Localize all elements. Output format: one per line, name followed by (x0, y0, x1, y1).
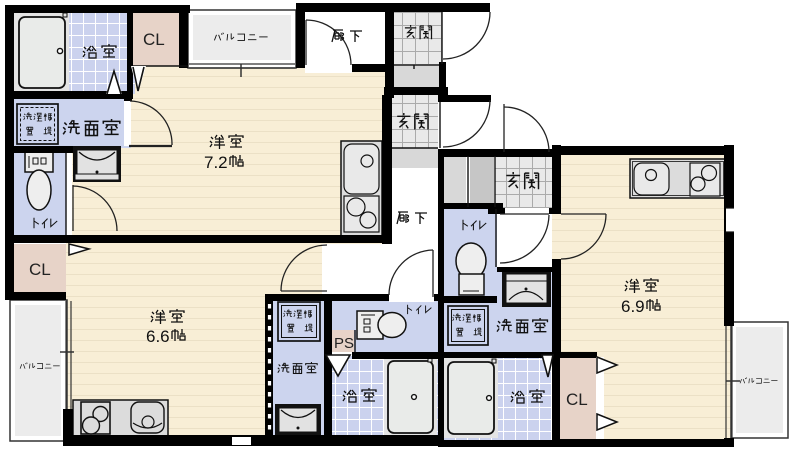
svg-text:6.9: 6.9 (621, 297, 645, 316)
svg-text:PS: PS (334, 335, 354, 352)
svg-text:CL: CL (566, 390, 588, 409)
svg-text:CL: CL (29, 260, 51, 279)
svg-text:6.6: 6.6 (146, 327, 170, 346)
svg-text:CL: CL (143, 30, 165, 49)
svg-text:7.2: 7.2 (204, 153, 228, 172)
